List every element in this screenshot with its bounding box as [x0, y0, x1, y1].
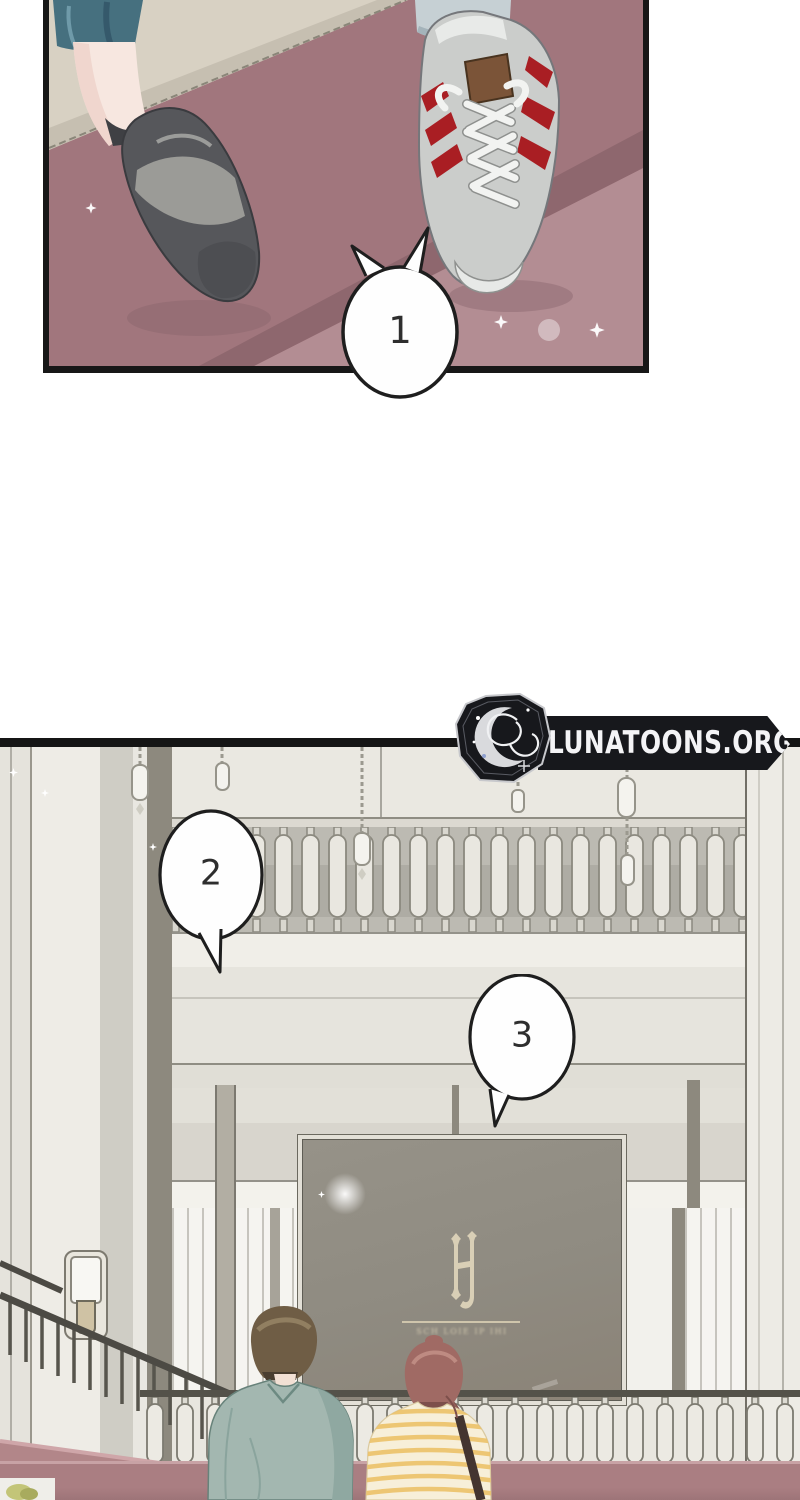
- speech-bubble-1: 1: [330, 224, 470, 400]
- sparkle-icon: [324, 1173, 366, 1215]
- sneaker-tongue-patch: [465, 54, 513, 104]
- panel-2-lobby: SCH LOIE IP IHI: [0, 738, 800, 1500]
- watermark-logo: LUNATOONS.ORG: [452, 690, 800, 786]
- bubble-number: 1: [388, 309, 412, 352]
- watermark-site-text: LUNATOONS.ORG: [548, 725, 794, 761]
- couple-figures: [0, 1298, 800, 1500]
- speech-bubble-2: 2: [155, 806, 270, 978]
- crescent-moon-badge-icon: [454, 690, 554, 786]
- comic-page: 1: [0, 0, 800, 1500]
- woman-figure: [360, 1335, 496, 1500]
- bubble-number: 2: [200, 853, 222, 893]
- speech-bubble-3: 3: [465, 974, 580, 1132]
- man-figure: [208, 1306, 353, 1500]
- bubble-number: 3: [511, 1015, 533, 1055]
- watermark-banner: LUNATOONS.ORG: [538, 716, 790, 770]
